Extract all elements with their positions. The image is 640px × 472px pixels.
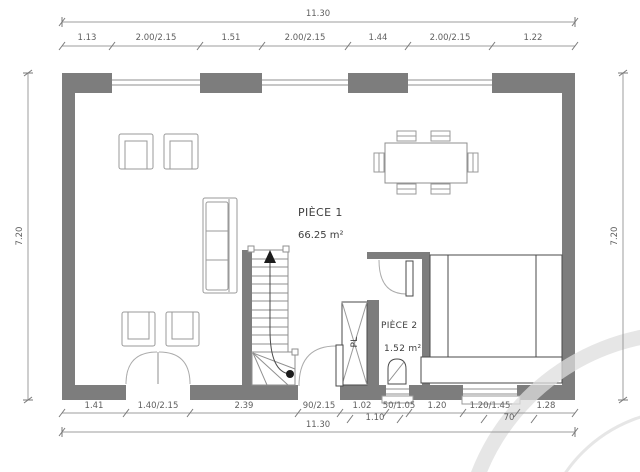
armchair-bottom-2 <box>166 312 199 346</box>
windows <box>112 80 520 404</box>
dim-bottom-seg-1: 1.41 <box>85 401 104 411</box>
dining-table <box>374 131 478 194</box>
window-top-2 <box>262 80 348 85</box>
wall-bottom-2 <box>190 385 298 400</box>
wall-bottom-1 <box>62 385 126 400</box>
wall-piece2-top <box>367 252 430 259</box>
armchair-bottom-1 <box>122 312 155 346</box>
wall-bottom-4 <box>409 385 463 400</box>
dim-bottom-seg-4: 90/2.15 <box>303 401 336 411</box>
closet-label-pl: PL <box>350 330 360 354</box>
dim-left-total: 7.20 <box>15 224 25 248</box>
piece2-door-leaf <box>406 261 413 296</box>
room-label-piece2: PIÈCE 2 <box>381 321 417 331</box>
wc-fixture <box>388 359 406 384</box>
kitchen-counters <box>421 255 562 383</box>
room-label-piece1: PIÈCE 1 <box>298 208 343 218</box>
dim-top-total: 11.30 <box>306 9 330 19</box>
dim-bottom-seg-9: 1.28 <box>537 401 556 411</box>
dim-bottom-seg-2: 1.40/2.15 <box>138 401 179 411</box>
dim-top-seg-5: 1.44 <box>369 33 388 43</box>
dim-bottom-sub-2: 70 <box>504 413 515 423</box>
window-top-1 <box>112 80 200 85</box>
dim-top-seg-7: 1.22 <box>524 33 543 43</box>
dim-bottom-seg-8: 1.20/1.45 <box>470 401 511 411</box>
dim-bottom-seg-5: 1.02 <box>353 401 372 411</box>
dim-bottom-total: 11.30 <box>306 420 330 430</box>
dim-top-seg-4: 2.00/2.15 <box>285 33 326 43</box>
wall-stair <box>242 250 252 385</box>
dim-top-seg-2: 2.00/2.15 <box>136 33 177 43</box>
dim-top-seg-1: 1.13 <box>78 33 97 43</box>
wall-bottom-3 <box>340 385 386 400</box>
dim-top-seg-3: 1.51 <box>222 33 241 43</box>
wall-left <box>62 73 75 400</box>
counter-right-column <box>536 255 562 357</box>
sofa <box>203 198 237 293</box>
dining-chair <box>374 153 384 172</box>
dim-right-total: 7.20 <box>610 224 620 248</box>
wall-closet-right <box>367 300 379 385</box>
main-door-leaf <box>336 345 343 386</box>
main-door <box>299 345 343 386</box>
window-top-3 <box>408 80 492 85</box>
floor-plan-canvas: 11.30 1.13 2.00/2.15 1.51 2.00/2.15 1.44… <box>0 0 640 472</box>
stair-up-arrow-icon <box>264 250 276 263</box>
wall-right <box>562 73 575 400</box>
armchair-top-2 <box>164 134 198 169</box>
dining-chair <box>397 131 416 141</box>
room-area-piece1: 66.25 m² <box>298 231 344 241</box>
dining-chair <box>468 153 478 172</box>
piece2-door <box>379 260 413 296</box>
french-door <box>126 352 190 384</box>
counter-left-column <box>430 255 448 357</box>
dining-chair <box>431 184 450 194</box>
dining-chair <box>397 184 416 194</box>
dim-bottom-seg-3: 2.39 <box>235 401 254 411</box>
dim-bottom-sub-1: 1.10 <box>366 413 385 423</box>
wall-top-segment-2 <box>348 73 408 93</box>
dining-chair <box>431 131 450 141</box>
dim-bottom-seg-6: 50/1.05 <box>383 401 416 411</box>
staircase <box>248 246 298 385</box>
armchair-top-1 <box>119 134 153 169</box>
dining-table-top <box>385 143 467 183</box>
dim-top-seg-6: 2.00/2.15 <box>430 33 471 43</box>
wall-top-segment-1 <box>200 73 262 93</box>
room-area-piece2: 1.52 m² <box>384 344 421 354</box>
dim-bottom-seg-7: 1.20 <box>428 401 447 411</box>
